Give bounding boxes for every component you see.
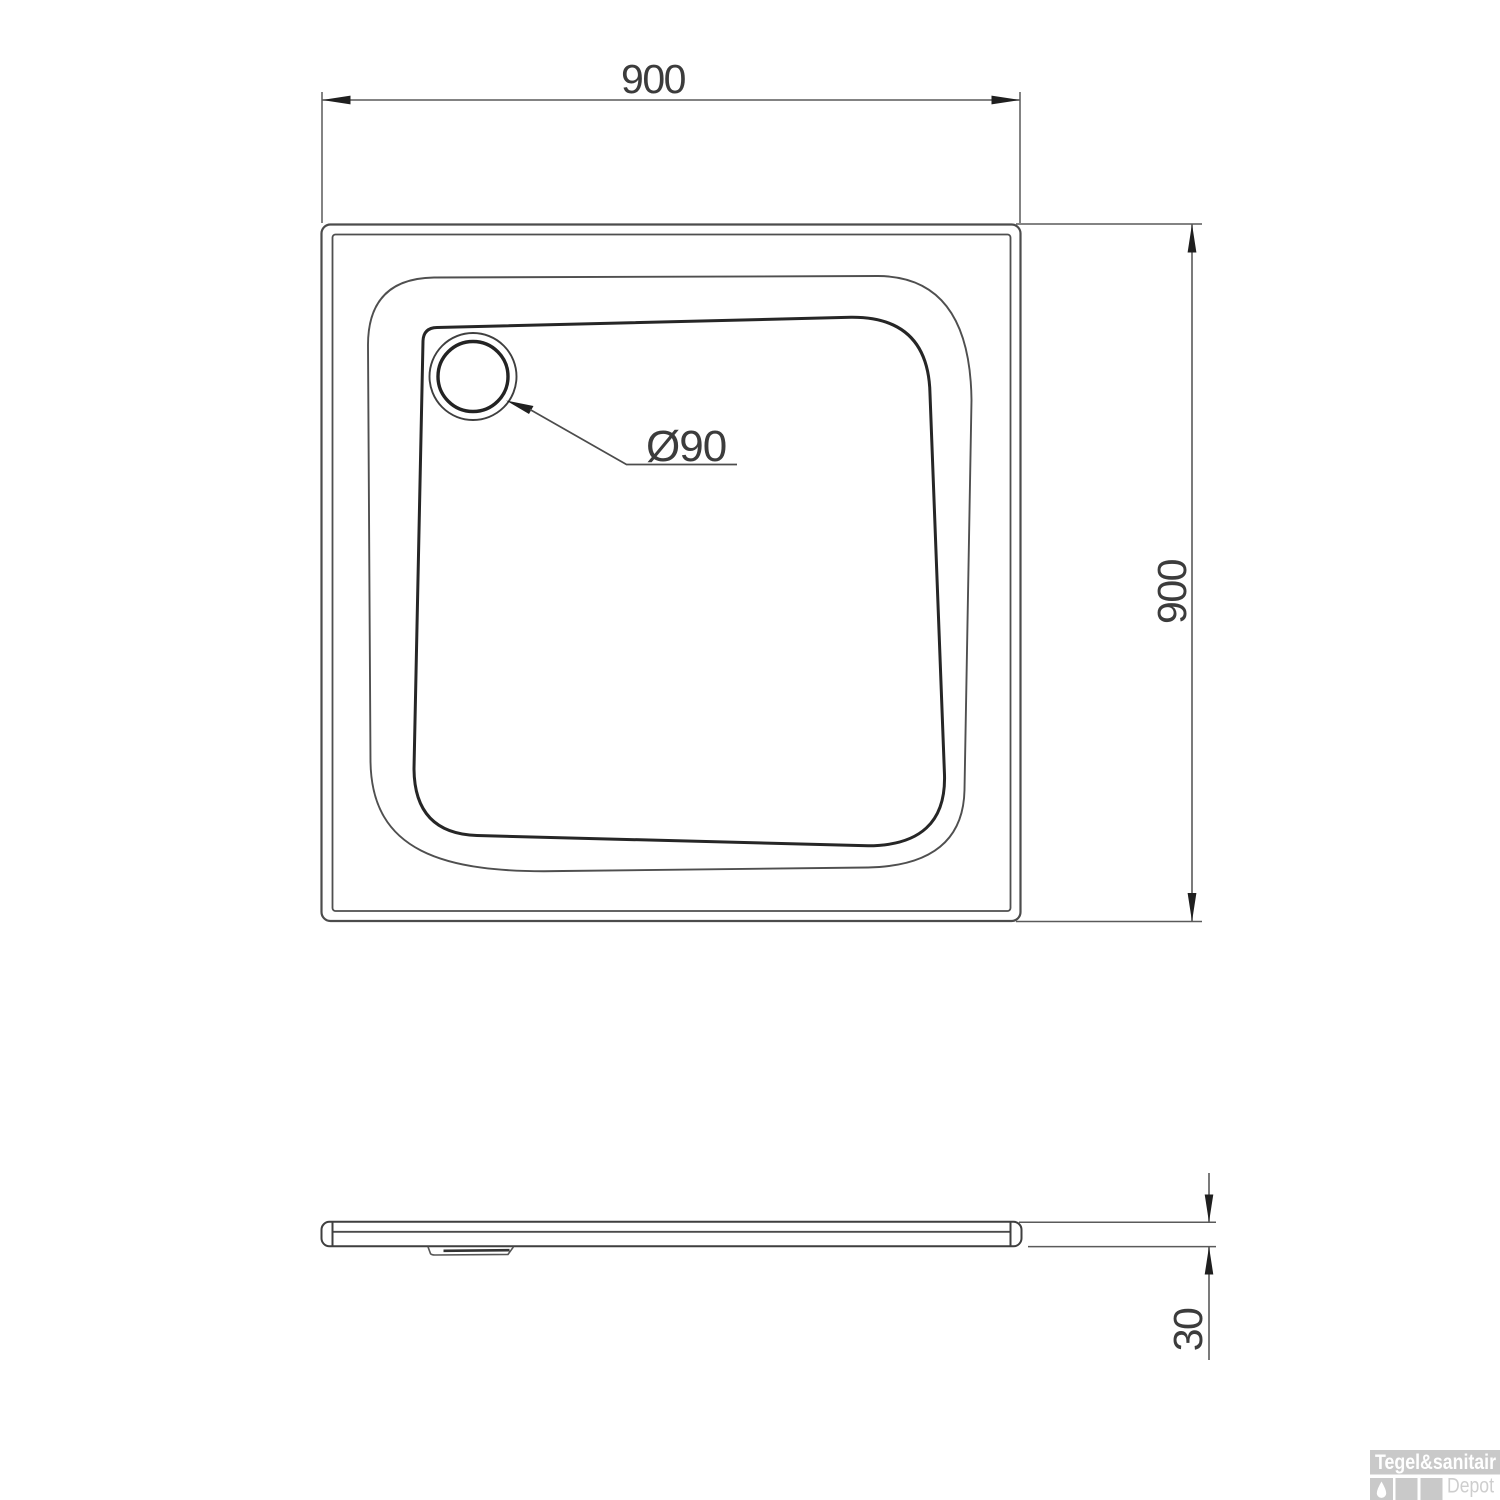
svg-text:Tegel&sanitair: Tegel&sanitair xyxy=(1375,1451,1496,1474)
svg-text:Ø90: Ø90 xyxy=(646,422,726,471)
svg-text:30: 30 xyxy=(1165,1308,1211,1351)
svg-text:900: 900 xyxy=(621,56,686,102)
svg-text:Depot: Depot xyxy=(1447,1474,1494,1498)
svg-text:900: 900 xyxy=(1149,559,1195,624)
